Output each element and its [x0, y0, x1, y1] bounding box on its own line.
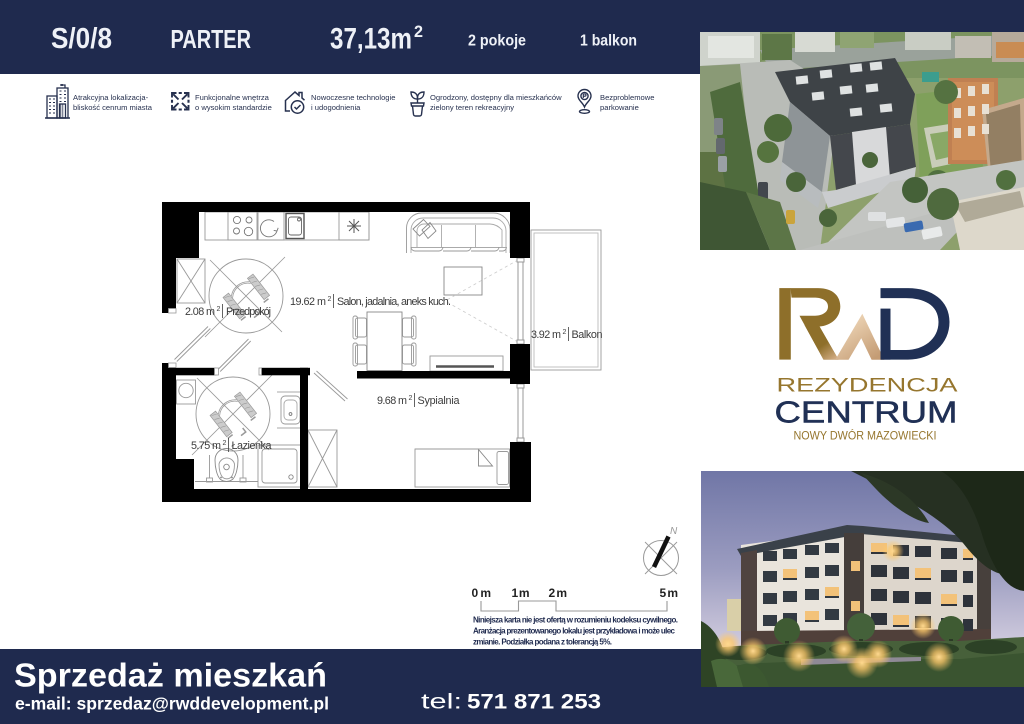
svg-text:Salon, jadalnia, aneks kuch.: Salon, jadalnia, aneks kuch.: [337, 296, 451, 308]
svg-text:2.08 m: 2.08 m: [185, 306, 215, 318]
svg-text:tel:: tel:: [421, 690, 462, 714]
svg-text:Balkon: Balkon: [572, 329, 603, 341]
svg-text:Łazienka: Łazienka: [232, 440, 272, 452]
svg-text:2 m: 2 m: [549, 586, 568, 600]
svg-text:CENTRUM: CENTRUM: [775, 395, 958, 430]
svg-text:9.68 m: 9.68 m: [377, 395, 407, 407]
svg-text:1 m: 1 m: [512, 586, 530, 600]
svg-text:Sypialnia: Sypialnia: [418, 395, 460, 407]
svg-text:5 m: 5 m: [660, 586, 679, 600]
svg-text:2: 2: [563, 329, 567, 336]
svg-text:3.92 m: 3.92 m: [531, 329, 561, 341]
svg-text:N: N: [670, 526, 678, 537]
svg-text:2: 2: [223, 440, 227, 447]
svg-text:NOWY DWÓR MAZOWIECKI: NOWY DWÓR MAZOWIECKI: [794, 428, 937, 443]
svg-text:19.62 m: 19.62 m: [290, 296, 326, 308]
svg-text:5.75 m: 5.75 m: [191, 440, 221, 452]
svg-text:0 m: 0 m: [472, 586, 492, 600]
svg-text:571 871 253: 571 871 253: [467, 690, 601, 714]
svg-text:2: 2: [409, 395, 413, 402]
svg-text:zmianie. Podziałka podana z to: zmianie. Podziałka podana z tolerancją 5…: [473, 638, 612, 647]
svg-text:Niniejsza karta nie jest ofert: Niniejsza karta nie jest ofertą w rozumi…: [473, 616, 678, 625]
svg-text:Aranżacja prezentowanego lokal: Aranżacja prezentowanego lokalu jest prz…: [473, 627, 676, 636]
svg-text:2: 2: [328, 296, 332, 303]
svg-text:REZYDENCJA: REZYDENCJA: [777, 376, 958, 397]
svg-text:e-mail: sprzedaz@rwddevelopmen: e-mail: sprzedaz@rwddevelopment.pl: [15, 694, 329, 714]
svg-text:Przedpokój: Przedpokój: [226, 306, 271, 318]
svg-text:Sprzedaż mieszkań: Sprzedaż mieszkań: [14, 658, 327, 695]
svg-text:2: 2: [217, 306, 221, 313]
